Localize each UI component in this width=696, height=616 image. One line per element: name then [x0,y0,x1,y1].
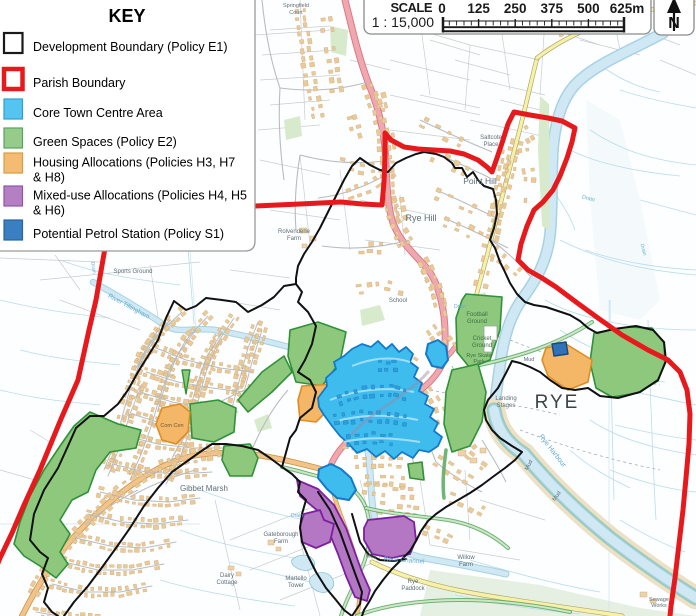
svg-text:Potential Petrol Station (Poli: Potential Petrol Station (Policy S1) [33,227,224,241]
svg-text:Works: Works [651,603,667,609]
svg-text:Court: Court [289,10,303,16]
svg-text:Park: Park [473,359,485,365]
svg-text:Saltcote: Saltcote [480,135,502,141]
svg-text:Martello: Martello [285,576,307,582]
svg-text:Sports Ground: Sports Ground [113,269,152,275]
svg-text:Rye: Rye [408,579,419,585]
svg-text:Com Cen: Com Cen [160,423,183,429]
svg-text:Core Town Centre Area: Core Town Centre Area [33,106,163,120]
svg-text:625m: 625m [610,1,645,16]
svg-text:Mixed-use Allocations (Policie: Mixed-use Allocations (Policies H4, H5 [33,189,247,203]
svg-text:Willow: Willow [457,555,475,561]
svg-text:Farm: Farm [287,236,301,242]
svg-text:Springfield: Springfield [283,3,309,9]
svg-text:1 : 15,000: 1 : 15,000 [372,14,434,30]
svg-text:Place: Place [483,142,499,148]
svg-text:& H8): & H8) [33,171,65,185]
svg-text:Gateborough: Gateborough [263,532,298,538]
svg-text:Farm: Farm [459,562,473,568]
svg-text:KEY: KEY [108,6,145,26]
svg-text:Ground: Ground [467,319,487,325]
svg-text:SCALE: SCALE [390,0,432,15]
svg-text:Mud: Mud [524,357,535,363]
svg-text:Rye Hill: Rye Hill [405,213,436,223]
svg-text:Ground: Ground [472,343,492,349]
svg-text:Point Hill: Point Hill [463,176,497,186]
svg-text:Drain: Drain [291,513,303,519]
svg-text:RYE: RYE [535,392,580,413]
svg-text:Stages: Stages [497,403,516,409]
svg-text:& H6): & H6) [33,204,65,218]
svg-text:Parish Boundary: Parish Boundary [33,76,126,90]
svg-text:0: 0 [438,1,446,16]
svg-text:Cottage: Cottage [216,580,238,586]
svg-text:500: 500 [577,1,600,16]
svg-text:Cricket: Cricket [473,336,492,342]
svg-text:Paddock: Paddock [401,586,425,592]
svg-text:Dairy: Dairy [220,573,234,579]
svg-text:N: N [668,15,680,32]
svg-text:Tower: Tower [288,583,304,589]
svg-text:School: School [389,298,407,304]
svg-text:375: 375 [541,1,564,16]
svg-text:Development Boundary (Policy E: Development Boundary (Policy E1) [33,40,228,54]
svg-text:Green Spaces (Policy E2): Green Spaces (Policy E2) [33,135,177,149]
svg-text:Farm: Farm [274,539,288,545]
svg-text:Gibbet Marsh: Gibbet Marsh [180,484,228,493]
svg-text:125: 125 [467,1,490,16]
svg-text:Landing: Landing [495,396,516,402]
svg-text:Rolvendene: Rolvendene [278,229,311,235]
svg-text:Housing Allocations (Policies: Housing Allocations (Policies H3, H7 [33,156,235,170]
svg-text:Football: Football [466,312,487,318]
svg-text:250: 250 [504,1,527,16]
svg-text:Drain: Drain [454,304,466,310]
